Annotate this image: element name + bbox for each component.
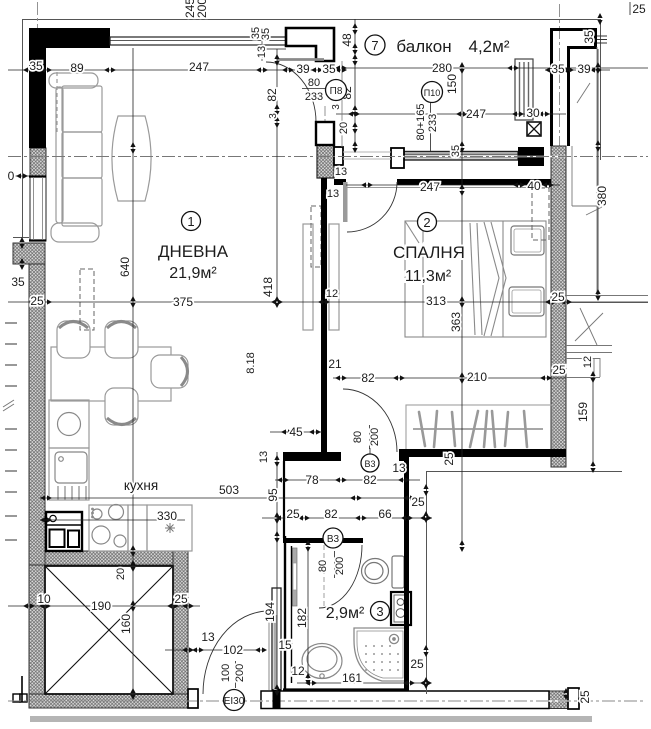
- svg-text:3: 3: [376, 604, 383, 619]
- svg-text:503: 503: [219, 483, 239, 497]
- svg-text:380: 380: [595, 186, 609, 206]
- svg-text:25: 25: [411, 495, 425, 509]
- svg-text:4,2м²: 4,2м²: [469, 37, 510, 56]
- svg-text:200: 200: [234, 664, 246, 682]
- svg-text:21: 21: [328, 357, 342, 371]
- svg-text:12: 12: [582, 356, 594, 368]
- svg-text:7: 7: [371, 38, 378, 53]
- svg-text:82: 82: [265, 88, 279, 102]
- svg-text:35: 35: [29, 59, 43, 73]
- svg-text:160: 160: [119, 614, 133, 634]
- svg-text:194: 194: [263, 602, 277, 622]
- svg-text:0: 0: [8, 169, 15, 183]
- svg-text:8.18: 8.18: [245, 352, 257, 373]
- svg-text:82: 82: [361, 371, 375, 385]
- svg-text:13: 13: [201, 630, 215, 644]
- svg-text:82: 82: [363, 473, 377, 487]
- svg-text:80: 80: [352, 431, 364, 443]
- svg-text:247: 247: [466, 107, 486, 121]
- svg-text:35: 35: [322, 62, 336, 76]
- svg-text:П10: П10: [424, 88, 440, 98]
- svg-text:25: 25: [30, 294, 44, 308]
- svg-text:25: 25: [442, 452, 456, 466]
- svg-text:ДНЕВНА: ДНЕВНА: [158, 242, 229, 261]
- svg-text:25: 25: [578, 690, 592, 704]
- svg-text:35: 35: [260, 28, 272, 40]
- svg-text:247: 247: [189, 60, 209, 74]
- svg-text:150: 150: [445, 74, 459, 94]
- svg-text:100: 100: [220, 664, 232, 682]
- svg-text:13: 13: [327, 188, 339, 200]
- svg-text:313: 313: [426, 294, 446, 308]
- svg-text:15: 15: [278, 638, 292, 652]
- svg-text:200: 200: [369, 428, 381, 446]
- svg-text:233: 233: [305, 91, 323, 103]
- svg-text:12: 12: [326, 288, 338, 300]
- svg-text:233: 233: [427, 114, 439, 132]
- svg-text:1: 1: [187, 214, 194, 229]
- svg-text:182: 182: [295, 608, 309, 628]
- svg-text:89: 89: [70, 61, 84, 75]
- svg-text:ЕІ30: ЕІ30: [224, 696, 245, 707]
- svg-text:13: 13: [335, 166, 347, 178]
- svg-text:балкон: балкон: [396, 37, 451, 56]
- svg-text:161: 161: [342, 671, 362, 685]
- svg-text:45: 45: [289, 425, 303, 439]
- svg-text:66: 66: [378, 507, 392, 521]
- svg-text:13: 13: [256, 46, 268, 58]
- svg-text:82: 82: [324, 507, 338, 521]
- svg-text:35: 35: [582, 30, 596, 44]
- svg-text:190: 190: [91, 599, 111, 613]
- svg-text:21,9м²: 21,9м²: [169, 265, 217, 282]
- svg-text:95: 95: [266, 488, 280, 502]
- svg-text:25: 25: [632, 2, 646, 16]
- svg-text:35: 35: [551, 62, 565, 76]
- svg-text:2,9м²: 2,9м²: [326, 605, 365, 622]
- svg-text:210: 210: [467, 370, 487, 384]
- svg-text:418: 418: [261, 277, 275, 297]
- svg-text:2: 2: [423, 215, 430, 230]
- svg-text:80: 80: [317, 560, 329, 572]
- svg-text:25: 25: [410, 657, 424, 671]
- svg-text:159: 159: [576, 402, 590, 422]
- svg-text:48: 48: [340, 33, 354, 47]
- svg-text:78: 78: [305, 473, 319, 487]
- svg-text:25: 25: [551, 290, 565, 304]
- svg-text:12: 12: [291, 664, 305, 678]
- svg-text:247: 247: [420, 180, 440, 194]
- svg-text:200: 200: [334, 557, 346, 575]
- svg-text:13: 13: [258, 451, 270, 463]
- svg-text:102: 102: [223, 643, 243, 657]
- svg-text:3: 3: [331, 104, 342, 110]
- svg-text:375: 375: [173, 295, 193, 309]
- svg-text:кухня: кухня: [124, 478, 158, 493]
- svg-text:СПАЛНЯ: СПАЛНЯ: [393, 243, 465, 262]
- svg-text:39: 39: [296, 62, 310, 76]
- svg-text:30: 30: [526, 106, 540, 120]
- svg-text:363: 363: [449, 312, 463, 332]
- svg-text:П8: П8: [330, 86, 343, 97]
- svg-text:11,3м²: 11,3м²: [405, 268, 452, 285]
- svg-text:13: 13: [392, 461, 406, 475]
- svg-text:35: 35: [450, 145, 462, 157]
- svg-text:3: 3: [268, 113, 279, 119]
- svg-text:80+165: 80+165: [415, 103, 427, 140]
- svg-text:640: 640: [118, 257, 132, 277]
- svg-text:25: 25: [552, 363, 566, 377]
- svg-text:200: 200: [195, 0, 209, 18]
- svg-text:20: 20: [115, 568, 127, 580]
- svg-text:В3: В3: [327, 534, 340, 545]
- svg-text:10: 10: [37, 592, 51, 606]
- svg-text:В3: В3: [364, 459, 375, 469]
- svg-text:80: 80: [308, 77, 320, 89]
- svg-text:35: 35: [11, 275, 25, 289]
- svg-text:330: 330: [157, 509, 177, 523]
- svg-text:25: 25: [174, 592, 188, 606]
- svg-text:40: 40: [527, 179, 541, 193]
- svg-text:20: 20: [338, 122, 350, 134]
- svg-text:39: 39: [577, 62, 591, 76]
- svg-text:280: 280: [432, 61, 452, 75]
- svg-text:25: 25: [286, 507, 300, 521]
